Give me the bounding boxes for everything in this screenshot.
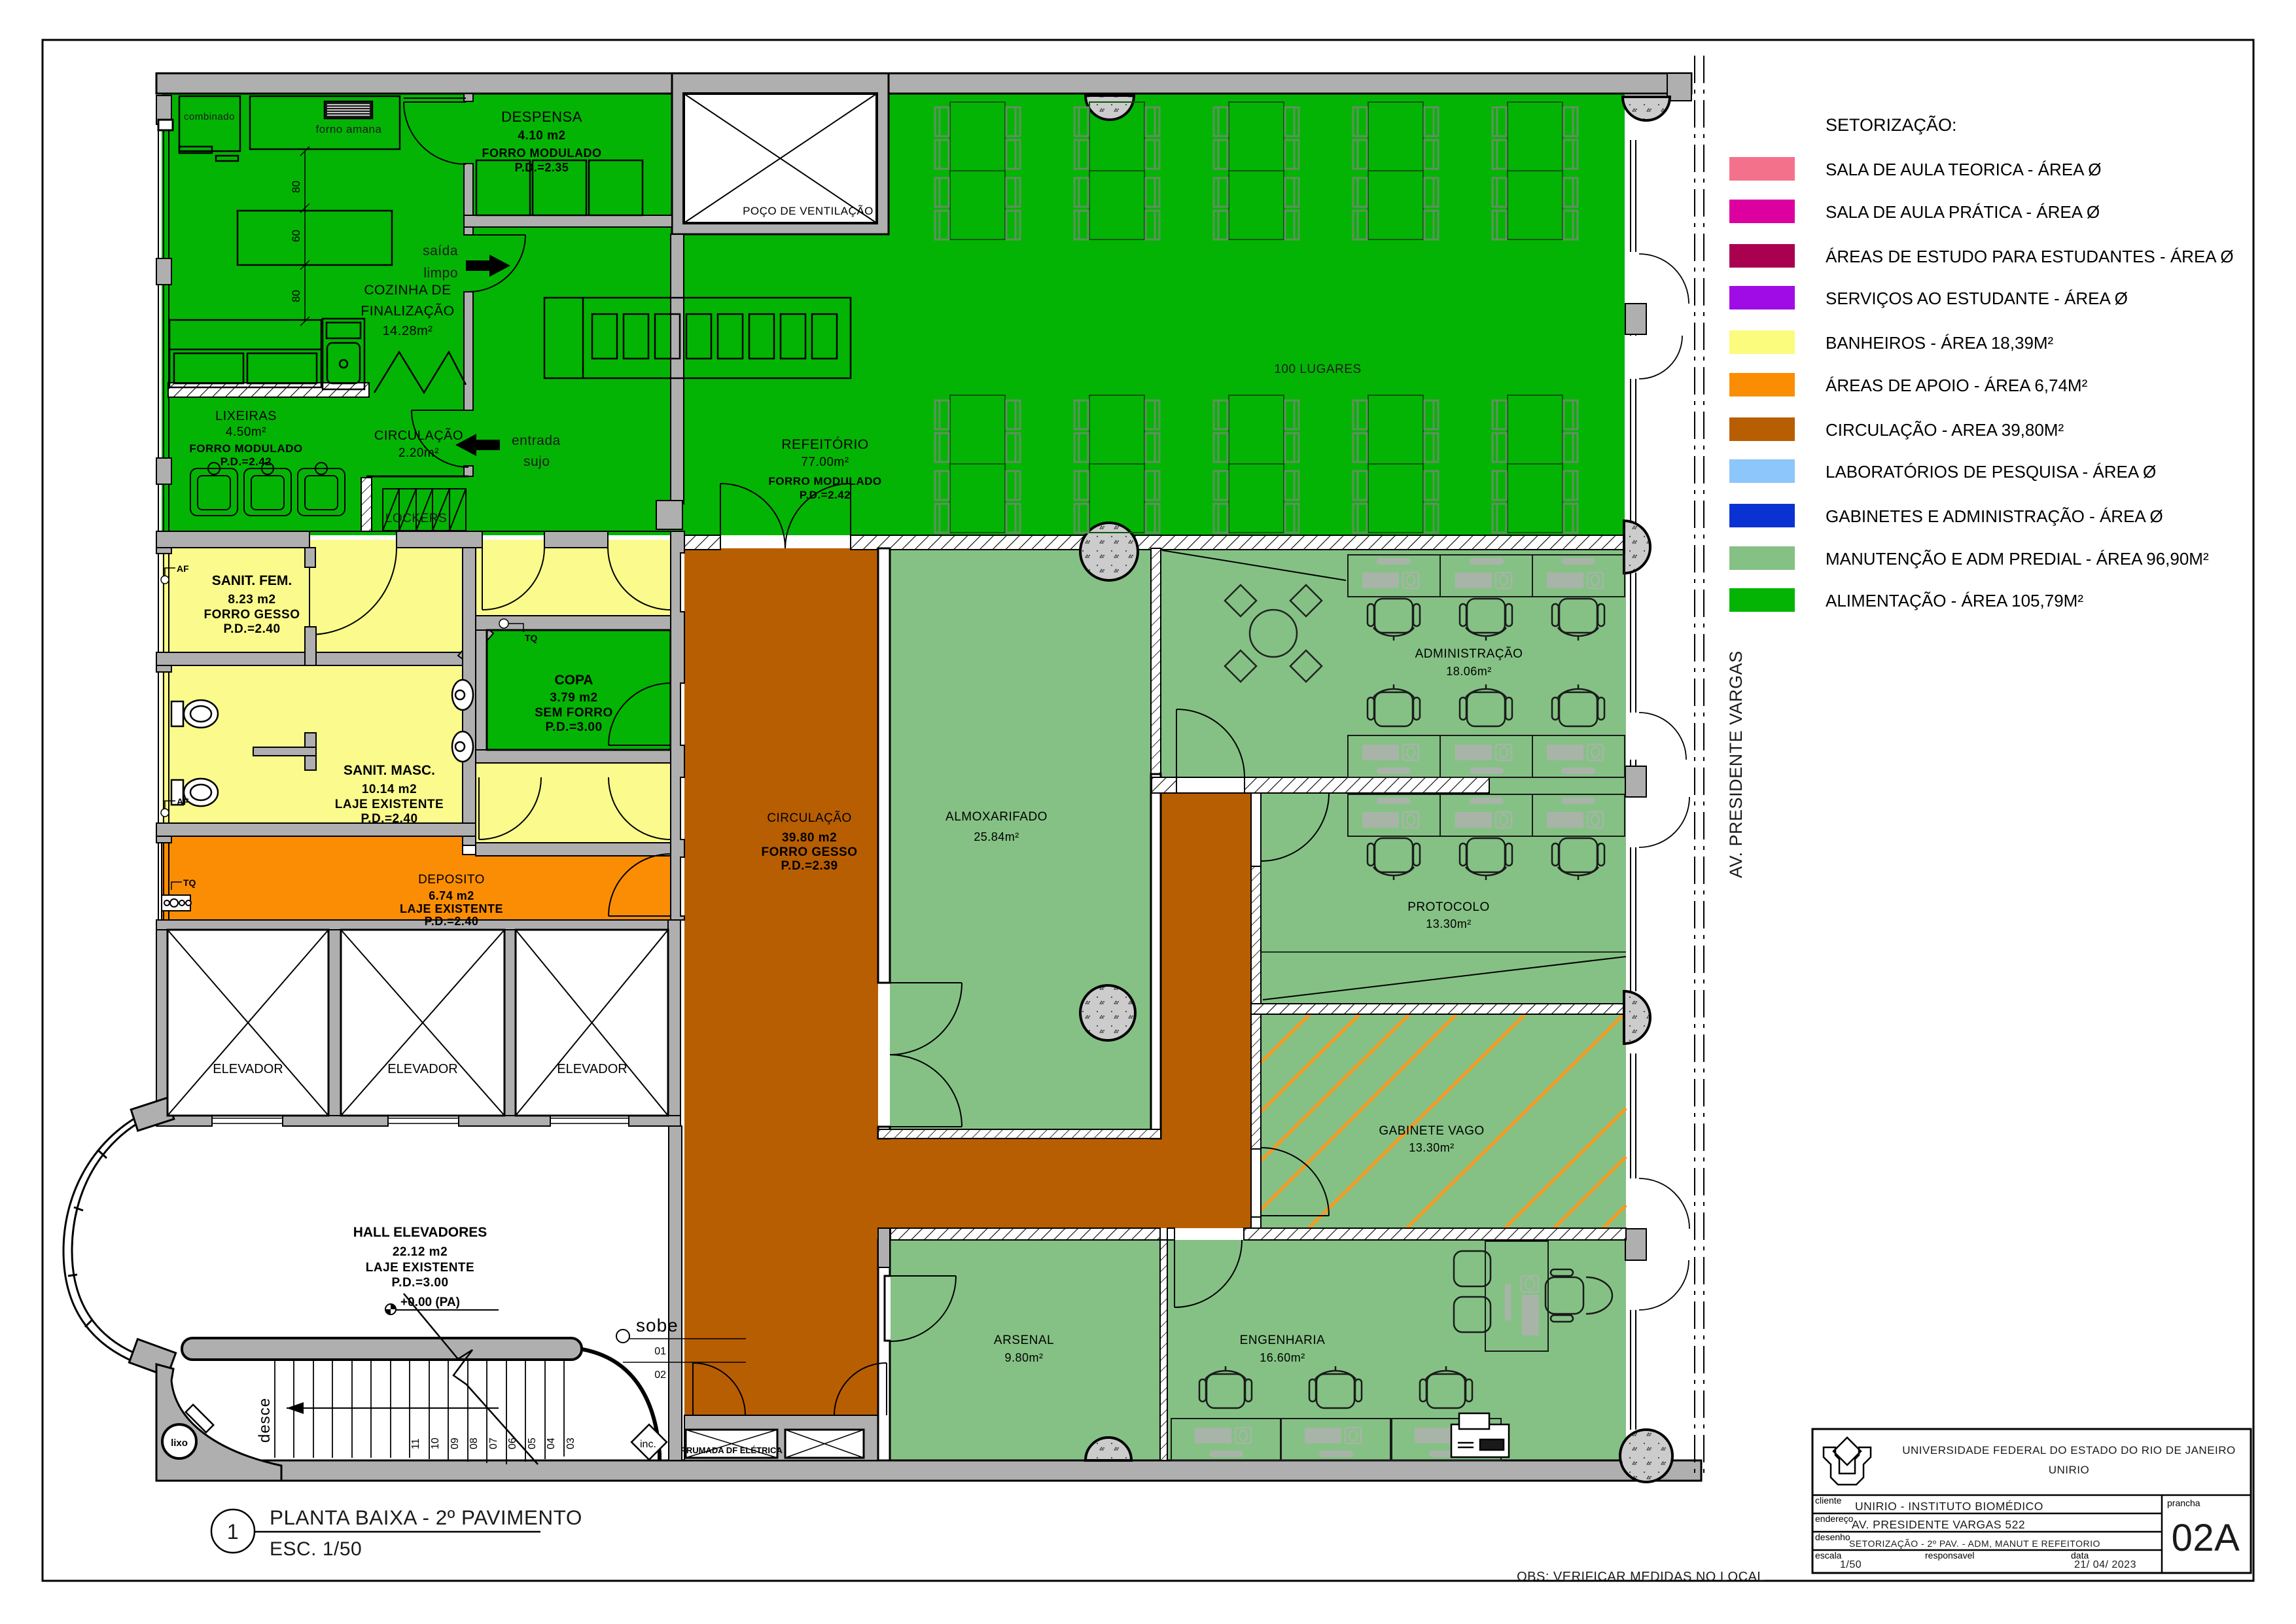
svg-text:P.D.=2.42: P.D.=2.42 (221, 455, 272, 468)
svg-text:TQ: TQ (525, 633, 538, 643)
svg-text:P.D.=2.40: P.D.=2.40 (425, 915, 479, 928)
svg-text:UNIRIO - INSTITUTO BIOMÉDICO: UNIRIO - INSTITUTO BIOMÉDICO (1855, 1500, 2043, 1513)
svg-text:ALMOXARIFADO: ALMOXARIFADO (945, 810, 1048, 824)
svg-text:6.74 m2: 6.74 m2 (429, 889, 474, 902)
svg-text:08: 08 (468, 1438, 480, 1449)
svg-text:FORRO GESSO: FORRO GESSO (762, 845, 858, 859)
svg-text:100 LUGARES: 100 LUGARES (1274, 362, 1361, 376)
svg-text:combinado: combinado (184, 111, 235, 122)
svg-text:forno amana: forno amana (316, 123, 382, 135)
svg-text:DESPENSA: DESPENSA (501, 109, 582, 125)
svg-text:18.06m²: 18.06m² (1446, 665, 1492, 678)
svg-text:1/50: 1/50 (1840, 1559, 1862, 1570)
svg-text:saída: saída (423, 243, 458, 258)
svg-text:UNIVERSIDADE FEDERAL DO ESTADO: UNIVERSIDADE FEDERAL DO ESTADO DO RIO DE… (1902, 1444, 2236, 1456)
svg-text:CIRCULAÇÃO: CIRCULAÇÃO (374, 427, 463, 443)
svg-text:ÁREAS DE APOIO - ÁREA 6,74M²: ÁREAS DE APOIO - ÁREA 6,74M² (1826, 376, 2088, 395)
svg-text:80: 80 (290, 181, 302, 193)
svg-text:ESC. 1/50: ESC. 1/50 (270, 1538, 362, 1560)
svg-text:8.23 m2: 8.23 m2 (228, 593, 275, 607)
svg-text:SERVIÇOS AO ESTUDANTE - ÁREA Ø: SERVIÇOS AO ESTUDANTE - ÁREA Ø (1826, 289, 2128, 308)
svg-text:GABINETES E ADMINISTRAÇÃO - ÁR: GABINETES E ADMINISTRAÇÃO - ÁREA Ø (1826, 506, 2163, 526)
svg-text:2.20m²: 2.20m² (398, 446, 439, 460)
svg-text:FORRO MODULADO: FORRO MODULADO (768, 475, 881, 487)
svg-text:16.60m²: 16.60m² (1260, 1351, 1305, 1364)
svg-text:MANUTENÇÃO E ADM PREDIAL - ÁRE: MANUTENÇÃO E ADM PREDIAL - ÁREA 96,90M² (1826, 549, 2209, 569)
svg-text:AV. PRESIDENTE VARGAS: AV. PRESIDENTE VARGAS (1726, 650, 1746, 878)
svg-text:BANHEIROS - ÁREA 18,39M²: BANHEIROS - ÁREA 18,39M² (1826, 333, 2054, 353)
svg-text:ELEVADOR: ELEVADOR (387, 1062, 457, 1076)
svg-text:10.14 m2: 10.14 m2 (362, 783, 417, 796)
svg-text:COPA: COPA (554, 673, 593, 688)
svg-text:04: 04 (546, 1438, 557, 1449)
svg-text:TQ: TQ (183, 877, 196, 888)
svg-text:80: 80 (290, 290, 302, 302)
svg-text:4.50m²: 4.50m² (226, 425, 266, 439)
svg-text:ENGENHARIA: ENGENHARIA (1240, 1333, 1326, 1347)
svg-text:LAJE EXISTENTE: LAJE EXISTENTE (366, 1261, 474, 1275)
svg-text:05: 05 (527, 1438, 538, 1449)
svg-text:COZINHA DE: COZINHA DE (364, 283, 451, 298)
svg-text:endereço: endereço (1815, 1513, 1854, 1524)
svg-text:entrada: entrada (512, 433, 561, 448)
svg-text:01: 01 (654, 1346, 666, 1357)
svg-text:prancha: prancha (2167, 1498, 2200, 1508)
svg-text:25.84m²: 25.84m² (974, 830, 1019, 843)
svg-text:07: 07 (488, 1438, 499, 1449)
svg-text:LOCKERS: LOCKERS (385, 512, 447, 525)
svg-text:LAJE EXISTENTE: LAJE EXISTENTE (400, 902, 503, 915)
svg-text:ARSENAL: ARSENAL (994, 1333, 1054, 1347)
svg-text:FORRO MODULADO: FORRO MODULADO (482, 147, 602, 160)
svg-text:POÇO DE VENTILAÇÃO: POÇO DE VENTILAÇÃO (743, 205, 874, 217)
svg-text:P.D.=2.40: P.D.=2.40 (361, 812, 417, 826)
svg-text:sobe: sobe (636, 1315, 679, 1335)
svg-text:sujo: sujo (523, 454, 550, 469)
svg-text:PRUMADA DF ELÉTRICA: PRUMADA DF ELÉTRICA (680, 1445, 783, 1455)
svg-text:responsavel: responsavel (1925, 1550, 1975, 1561)
svg-text:OBS: VERIFICAR MEDIDAS NO LOCA: OBS: VERIFICAR MEDIDAS NO LOCAL (1517, 1570, 1765, 1584)
svg-text:CIRCULAÇÃO - AREA 39,80M²: CIRCULAÇÃO - AREA 39,80M² (1826, 420, 2064, 440)
svg-text:1: 1 (227, 1520, 239, 1544)
svg-text:lixo: lixo (171, 1438, 188, 1449)
svg-text:UNIRIO: UNIRIO (2049, 1464, 2090, 1476)
svg-text:P.D.=3.00: P.D.=3.00 (545, 720, 602, 734)
svg-text:39.80 m2: 39.80 m2 (782, 831, 837, 845)
svg-text:REFEITÓRIO: REFEITÓRIO (781, 437, 868, 452)
svg-text:DEPOSITO: DEPOSITO (418, 873, 485, 887)
svg-text:LABORATÓRIOS DE PESQUISA - ÁRE: LABORATÓRIOS DE PESQUISA - ÁREA Ø (1826, 462, 2156, 482)
svg-text:P.D.=2.40: P.D.=2.40 (223, 622, 280, 636)
svg-text:cliente: cliente (1815, 1495, 1842, 1506)
svg-text:60: 60 (290, 230, 302, 242)
svg-text:09: 09 (450, 1438, 461, 1449)
svg-text:inc.: inc. (640, 1439, 656, 1450)
svg-text:desenho: desenho (1815, 1532, 1850, 1542)
svg-text:13.30m²: 13.30m² (1409, 1141, 1455, 1154)
svg-text:02A: 02A (2172, 1517, 2240, 1559)
svg-text:P.D.=2.39: P.D.=2.39 (781, 859, 838, 873)
svg-text:02: 02 (654, 1369, 666, 1381)
svg-text:+0.00 (PA): +0.00 (PA) (400, 1296, 460, 1309)
svg-text:21/ 04/ 2023: 21/ 04/ 2023 (2074, 1559, 2136, 1570)
svg-text:10: 10 (430, 1438, 441, 1449)
svg-text:PROTOCOLO: PROTOCOLO (1407, 900, 1490, 914)
svg-text:SANIT. MASC.: SANIT. MASC. (344, 763, 435, 778)
svg-text:AF: AF (177, 796, 189, 807)
svg-text:AV. PRESIDENTE VARGAS 522: AV. PRESIDENTE VARGAS 522 (1852, 1518, 2025, 1531)
svg-text:SALA DE AULA PRÁTICA - ÁREA Ø: SALA DE AULA PRÁTICA - ÁREA Ø (1826, 202, 2100, 222)
svg-text:CIRCULAÇÃO: CIRCULAÇÃO (767, 811, 852, 825)
svg-text:77.00m²: 77.00m² (801, 455, 849, 469)
svg-text:9.80m²: 9.80m² (1004, 1351, 1043, 1364)
svg-text:GABINETE VAGO: GABINETE VAGO (1379, 1124, 1484, 1138)
svg-text:SETORIZAÇÃO - 2º PAV. - ADM, M: SETORIZAÇÃO - 2º PAV. - ADM, MANUT E REF… (1849, 1538, 2100, 1549)
svg-text:3.79 m2: 3.79 m2 (550, 691, 597, 705)
svg-text:PLANTA BAIXA - 2º PAVIMENTO: PLANTA BAIXA - 2º PAVIMENTO (270, 1506, 582, 1529)
svg-text:ELEVADOR: ELEVADOR (557, 1062, 627, 1076)
svg-text:ADMINISTRAÇÃO: ADMINISTRAÇÃO (1415, 646, 1523, 661)
svg-text:22.12 m2: 22.12 m2 (393, 1245, 448, 1259)
svg-text:P.D.=2.42: P.D.=2.42 (800, 489, 851, 501)
svg-text:AF: AF (177, 563, 189, 574)
svg-text:ÁREAS DE ESTUDO PARA ESTUDANTE: ÁREAS DE ESTUDO PARA ESTUDANTES - ÁREA Ø (1826, 247, 2234, 266)
svg-text:ELEVADOR: ELEVADOR (213, 1062, 283, 1076)
svg-text:LAJE EXISTENTE: LAJE EXISTENTE (335, 798, 444, 811)
svg-text:ALIMENTAÇÃO - ÁREA 105,79M²: ALIMENTAÇÃO - ÁREA 105,79M² (1826, 591, 2083, 610)
svg-text:FINALIZAÇÃO: FINALIZAÇÃO (361, 303, 454, 319)
svg-text:4.10 m2: 4.10 m2 (518, 129, 565, 143)
svg-text:limpo: limpo (423, 266, 458, 281)
svg-text:HALL ELEVADORES: HALL ELEVADORES (353, 1225, 487, 1240)
svg-text:FORRO MODULADO: FORRO MODULADO (189, 442, 302, 455)
svg-text:desce: desce (256, 1398, 274, 1443)
svg-text:SETORIZAÇÃO:: SETORIZAÇÃO: (1826, 115, 1957, 135)
svg-text:P.D.=3.00: P.D.=3.00 (391, 1276, 448, 1290)
svg-text:SALA DE AULA TEORICA - ÁREA Ø: SALA DE AULA TEORICA - ÁREA Ø (1826, 160, 2101, 179)
svg-text:P.D.=2.35: P.D.=2.35 (515, 161, 569, 174)
svg-text:11: 11 (410, 1438, 421, 1449)
svg-text:FORRO GESSO: FORRO GESSO (204, 608, 300, 622)
svg-text:14.28m²: 14.28m² (383, 324, 433, 338)
svg-text:SANIT. FEM.: SANIT. FEM. (212, 573, 292, 588)
svg-text:SEM FORRO: SEM FORRO (535, 706, 613, 720)
svg-text:13.30m²: 13.30m² (1426, 917, 1472, 930)
svg-text:03: 03 (565, 1438, 576, 1449)
svg-text:escala: escala (1815, 1550, 1842, 1561)
svg-text:LIXEIRAS: LIXEIRAS (215, 409, 277, 423)
